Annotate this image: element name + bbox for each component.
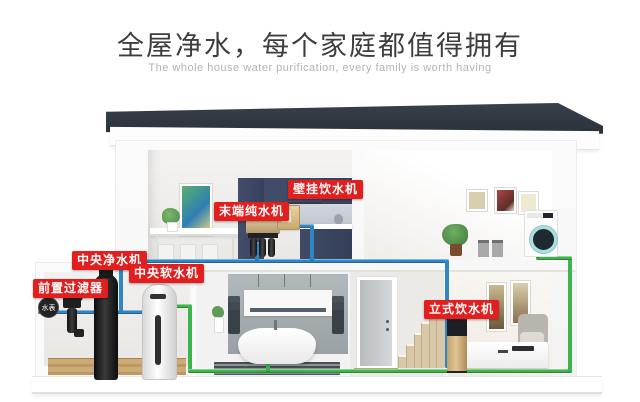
pre-filter-drain — [74, 329, 84, 337]
label-central-softener: 中央软水机 — [129, 264, 204, 283]
towel-unit — [228, 296, 240, 334]
bathtub — [238, 328, 316, 364]
pre-filter-head — [63, 297, 81, 308]
poster-canvas: 全屋净水，每个家庭都值得拥有 The whole house water pur… — [0, 0, 640, 402]
bed-throw-items — [498, 350, 508, 353]
pendant-light — [258, 274, 259, 287]
laundry-stool — [492, 240, 503, 257]
laundry-plant-pot — [450, 244, 462, 256]
bed-throw-items — [512, 346, 534, 351]
bathtub-faucet — [274, 320, 277, 330]
terminal-purifier-top — [246, 219, 280, 234]
pendant-light — [284, 274, 285, 287]
filter-cartridge — [250, 238, 257, 257]
bathroom-vase — [214, 317, 224, 333]
central-softener-window — [155, 315, 161, 365]
page-subtitle: The whole house water purification, ever… — [0, 62, 640, 74]
standing-dispenser-body — [447, 336, 467, 373]
water-meter: 水表 — [38, 297, 59, 318]
kitchen-kettle — [334, 214, 343, 224]
washing-machine-panel — [527, 213, 553, 218]
central-softener-display — [150, 294, 166, 299]
laundry-stool — [478, 240, 489, 257]
pipe-blue-main-horizontal — [119, 259, 449, 263]
plant-pot — [167, 222, 178, 232]
washing-machine-door — [530, 226, 557, 253]
label-wall-dispenser: 壁挂饮水机 — [288, 180, 363, 199]
bathroom-counter-items — [250, 308, 326, 312]
label-standing-dispenser: 立式饮水机 — [424, 300, 499, 319]
pipe-green-right-riser — [568, 256, 572, 373]
page-title: 全屋净水，每个家庭都值得拥有 — [0, 24, 640, 63]
dining-table-leg — [232, 234, 234, 260]
house-foundation — [32, 376, 602, 394]
laundry-plant — [442, 224, 468, 246]
pendant-light — [310, 274, 311, 287]
laundry-picture — [495, 188, 516, 213]
hall-door — [360, 280, 392, 366]
pipe-blue-dispenser-drop — [310, 224, 314, 261]
pipe-green-floor-run — [188, 369, 572, 373]
filter-cartridge — [268, 238, 275, 257]
standing-dispenser-top — [447, 316, 467, 336]
door-handle — [386, 320, 389, 323]
dining-table-top — [150, 228, 238, 236]
pipe-green-left-drop — [188, 304, 192, 373]
filter-cartridge — [259, 238, 266, 257]
door-handle — [386, 328, 389, 331]
kitchen-base-cabinet — [300, 229, 352, 260]
label-terminal-purifier: 末端纯水机 — [214, 202, 289, 221]
label-pre-filter: 前置过滤器 — [33, 279, 108, 298]
bathroom-vanity-band — [244, 290, 332, 316]
laundry-picture — [467, 190, 487, 211]
towel-unit — [332, 296, 344, 334]
